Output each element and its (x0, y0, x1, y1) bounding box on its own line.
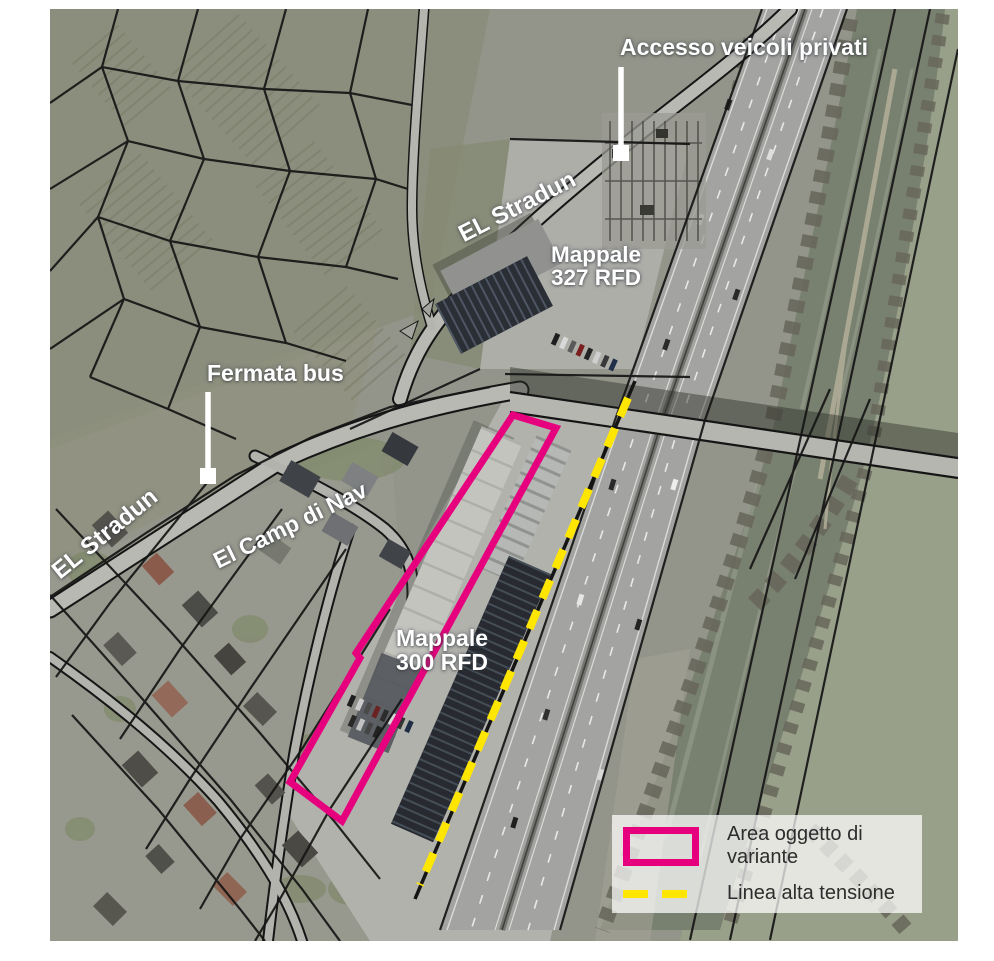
bus-stop-marker (200, 468, 216, 484)
legend-item-power-line: Linea alta tensione (623, 882, 922, 905)
annotation-overlay (50, 9, 958, 941)
aerial-map: Accesso veicoli privati Fermata bus Mapp… (50, 9, 958, 941)
legend: Area oggetto di variante Linea alta tens… (612, 815, 922, 913)
parcel-300-label: Mappale 300 RFD (391, 626, 493, 674)
access-label: Accesso veicoli privati (620, 35, 868, 59)
variant-area-polygon (290, 415, 556, 821)
legend-label: Area oggetto di variante (727, 823, 922, 869)
legend-label: Linea alta tensione (727, 882, 895, 905)
variant-area-swatch-icon (623, 827, 699, 866)
page: Accesso veicoli privati Fermata bus Mapp… (0, 0, 994, 961)
legend-item-variant-area: Area oggetto di variante (623, 823, 922, 869)
parcel-327-label: Mappale 327 RFD (545, 243, 647, 289)
access-point-marker (613, 145, 629, 161)
bus-stop-label: Fermata bus (207, 361, 344, 385)
power-line-swatch-icon (623, 890, 701, 898)
